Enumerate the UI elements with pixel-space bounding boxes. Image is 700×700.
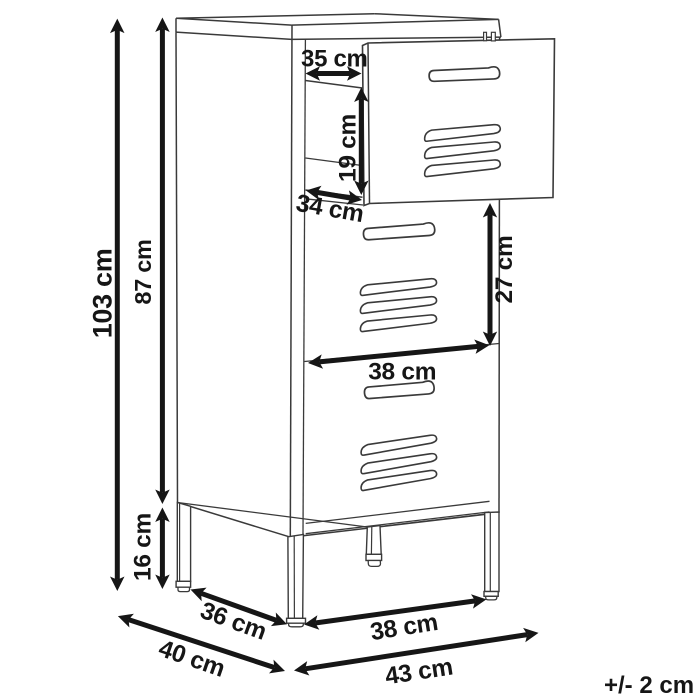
svg-text:103 cm: 103 cm: [87, 249, 117, 339]
svg-text:+/- 2 cm: +/- 2 cm: [604, 672, 694, 699]
svg-text:19 cm: 19 cm: [334, 114, 361, 182]
svg-text:87 cm: 87 cm: [130, 239, 156, 304]
svg-text:35 cm: 35 cm: [301, 45, 368, 72]
svg-text:16 cm: 16 cm: [130, 513, 157, 581]
svg-text:38 cm: 38 cm: [368, 358, 436, 385]
svg-text:27 cm: 27 cm: [491, 236, 518, 304]
